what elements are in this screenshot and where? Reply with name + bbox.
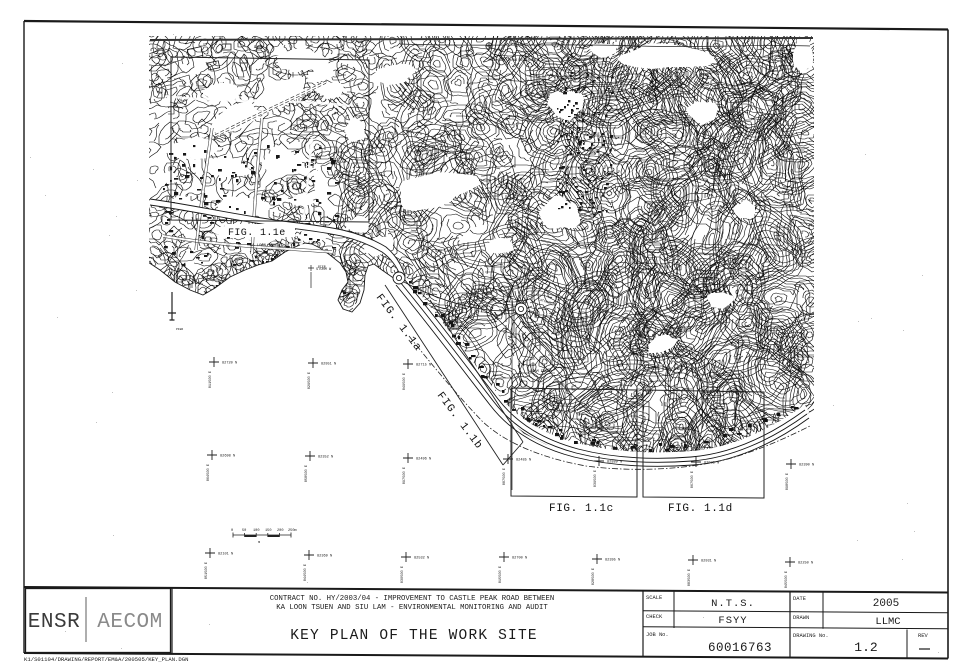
svg-text:TAI LAM: TAI LAM [330, 161, 347, 165]
svg-text:SCALE: SCALE [646, 595, 662, 601]
svg-text:845500 E: 845500 E [785, 571, 789, 588]
svg-text:CONTRACT NO. HY/2003/04 - IMPR: CONTRACT NO. HY/2003/04 - IMPROVEMENT TO… [270, 595, 555, 603]
svg-text:2005: 2005 [873, 598, 899, 610]
svg-text:82496 N: 82496 N [416, 458, 431, 462]
svg-text:FSYY: FSYY [718, 615, 747, 627]
svg-text:250m: 250m [288, 529, 297, 533]
svg-text:849500 E: 849500 E [403, 373, 407, 390]
svg-text:50: 50 [242, 529, 246, 533]
svg-text:82700 N: 82700 N [512, 557, 527, 561]
svg-text:864500 E: 864500 E [207, 464, 211, 481]
svg-text:AECOM: AECOM [97, 611, 163, 634]
svg-text:DRAWING No.: DRAWING No. [793, 633, 829, 639]
svg-text:60016763: 60016763 [708, 641, 772, 655]
svg-text:JOB No.: JOB No. [646, 632, 669, 638]
svg-text:TSING LUNG TAU: TSING LUNG TAU [648, 368, 682, 372]
svg-text:82485 N: 82485 N [516, 459, 531, 463]
svg-text:TAI LAM CHUNG: TAI LAM CHUNG [700, 158, 728, 162]
svg-text:82390 N: 82390 N [799, 464, 814, 468]
svg-text:200: 200 [277, 529, 283, 533]
svg-text:82101 N: 82101 N [218, 553, 233, 557]
svg-text:FIG. 1.1e: FIG. 1.1e [228, 228, 286, 239]
svg-text:PIER: PIER [176, 328, 183, 331]
svg-text:LLMC: LLMC [875, 616, 900, 628]
svg-text:SHAM TSENG: SHAM TSENG [530, 370, 552, 374]
svg-text:828500 E: 828500 E [592, 568, 596, 585]
svg-text:DRAWN: DRAWN [793, 615, 809, 621]
svg-text:82926 N: 82926 N [704, 462, 719, 466]
svg-text:811500 E: 811500 E [209, 371, 213, 388]
svg-text:1.2: 1.2 [854, 640, 877, 655]
svg-text:KA LOON TSUEN: KA LOON TSUEN [250, 244, 280, 248]
svg-text:82720 N: 82720 N [222, 362, 237, 366]
svg-text:858500 E: 858500 E [305, 465, 309, 482]
svg-text:883500 E: 883500 E [688, 569, 692, 586]
svg-text:N.T.S.: N.T.S. [711, 598, 755, 610]
svg-text:150: 150 [265, 529, 271, 533]
svg-text:867500 E: 867500 E [691, 471, 695, 488]
svg-text:851500 E: 851500 E [205, 562, 209, 579]
svg-text:DATE: DATE [793, 596, 806, 602]
svg-text:839500 E: 839500 E [594, 470, 598, 487]
svg-text:82369 N: 82369 N [317, 555, 332, 559]
svg-text:815500 E: 815500 E [499, 566, 503, 583]
svg-text:898500 E: 898500 E [786, 473, 790, 490]
svg-text:82889 N: 82889 N [607, 461, 622, 465]
svg-text:82698 N: 82698 N [220, 455, 235, 459]
svg-text:830500 E: 830500 E [401, 566, 405, 583]
svg-text:FIG. 1.1d: FIG. 1.1d [668, 503, 733, 515]
svg-text:KA LOON TSUEN AND SIU LAM - EN: KA LOON TSUEN AND SIU LAM - ENVIRONMENTA… [276, 604, 548, 612]
svg-text:829500 E: 829500 E [308, 372, 312, 389]
svg-text:82715 N: 82715 N [416, 364, 431, 368]
svg-text:CHECK: CHECK [646, 614, 663, 620]
svg-text:VILLAGE: VILLAGE [585, 133, 600, 137]
svg-text:897500 E: 897500 E [403, 467, 407, 484]
svg-text:KEY PLAN OF THE WORK SITE: KEY PLAN OF THE WORK SITE [290, 628, 538, 644]
svg-text:REV: REV [918, 633, 928, 639]
svg-text:TAI LAM CHUNG RESERVOIR: TAI LAM CHUNG RESERVOIR [489, 59, 539, 63]
svg-text:PIER: PIER [318, 265, 326, 269]
svg-text:m: m [258, 541, 260, 545]
svg-text:844500 E: 844500 E [304, 564, 308, 581]
svg-text:FIG. 1.1c: FIG. 1.1c [549, 503, 614, 515]
svg-text:100: 100 [253, 529, 259, 533]
svg-text:0: 0 [231, 529, 233, 533]
svg-text:SIU LAM: SIU LAM [435, 250, 452, 254]
svg-text:ENSR: ENSR [28, 611, 80, 634]
svg-text:82931 N: 82931 N [701, 560, 716, 564]
svg-text:K1/S01104/DRAWING/REPORT/EM&A/: K1/S01104/DRAWING/REPORT/EM&A/200505/KEY… [24, 656, 188, 663]
svg-text:887500 E: 887500 E [503, 468, 507, 485]
svg-text:82352 N: 82352 N [318, 456, 333, 460]
svg-text:82395 N: 82395 N [605, 559, 620, 563]
svg-text:82951 N: 82951 N [321, 363, 336, 367]
svg-text:82250 N: 82250 N [798, 562, 813, 566]
svg-text:82532 N: 82532 N [414, 557, 429, 561]
